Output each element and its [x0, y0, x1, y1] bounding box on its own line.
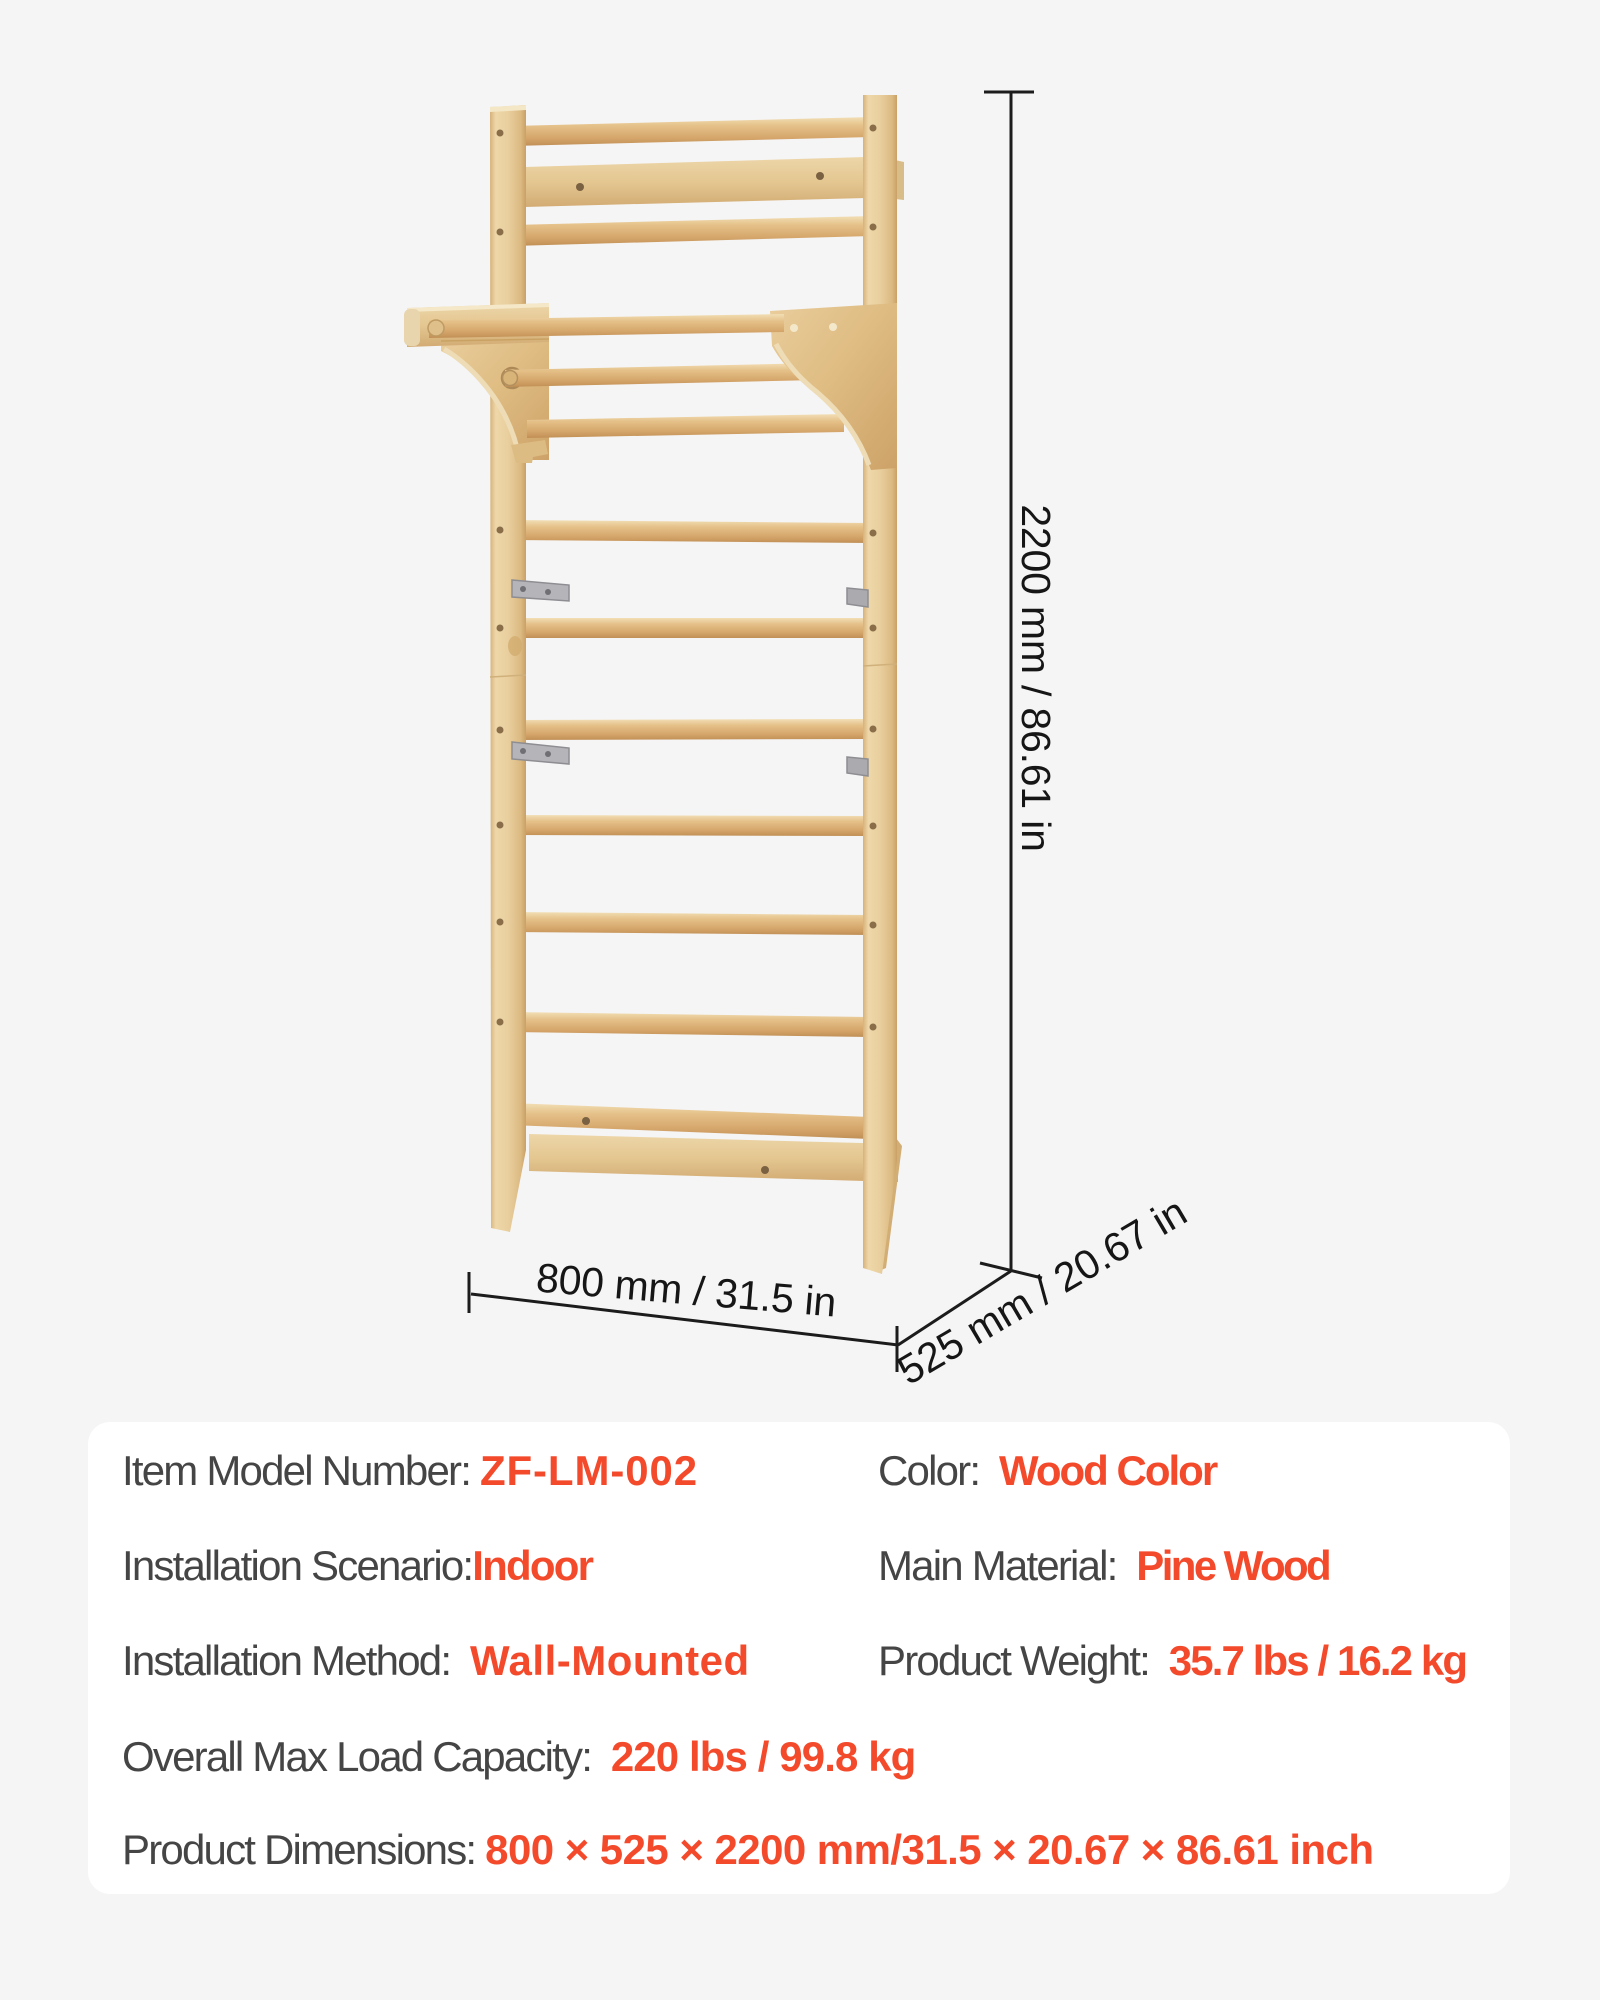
svg-text:2200 mm / 86.61 in: 2200 mm / 86.61 in — [1013, 504, 1059, 851]
